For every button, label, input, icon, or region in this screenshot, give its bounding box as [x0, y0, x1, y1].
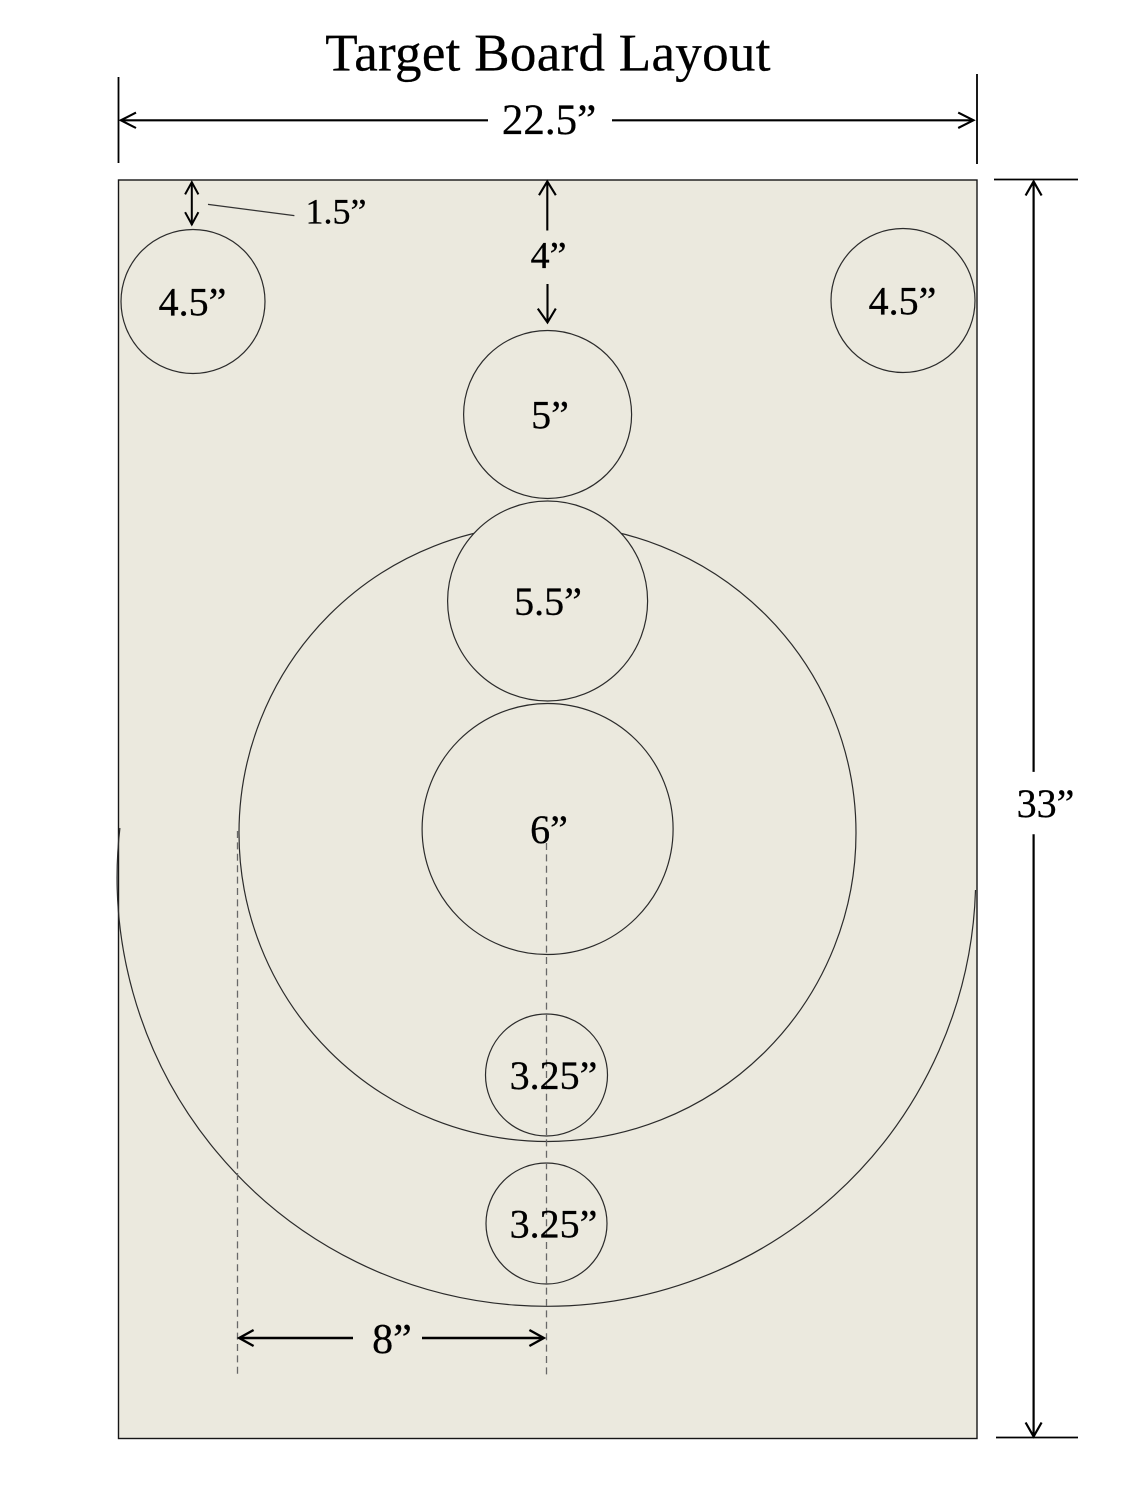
svg-text:33”: 33” — [1017, 781, 1075, 826]
svg-text:4.5”: 4.5” — [159, 279, 227, 324]
svg-text:8”: 8” — [372, 1317, 412, 1363]
svg-text:4”: 4” — [531, 235, 567, 277]
svg-text:4.5”: 4.5” — [869, 278, 937, 323]
svg-text:5”: 5” — [531, 392, 569, 437]
svg-text:Target Board Layout: Target Board Layout — [325, 25, 771, 83]
svg-text:3.25”: 3.25” — [510, 1201, 598, 1246]
svg-text:3.25”: 3.25” — [510, 1053, 598, 1098]
svg-text:5.5”: 5.5” — [514, 579, 582, 624]
svg-text:1.5”: 1.5” — [306, 192, 367, 232]
svg-text:22.5”: 22.5” — [502, 97, 596, 144]
svg-text:6”: 6” — [530, 807, 568, 852]
